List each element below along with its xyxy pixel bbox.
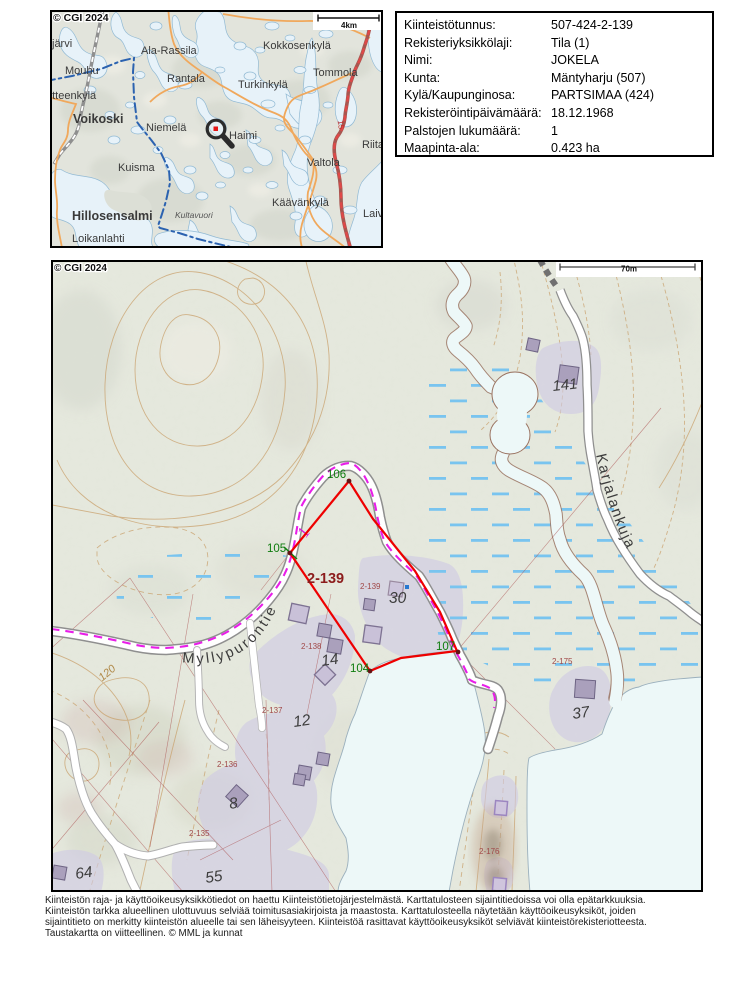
svg-text:2-139: 2-139 (360, 582, 381, 591)
svg-text:Kokkosenkylä: Kokkosenkylä (263, 40, 332, 52)
svg-text:Voikoski: Voikoski (73, 112, 123, 126)
svg-text:© CGI 2024: © CGI 2024 (53, 12, 109, 24)
svg-text:2-176: 2-176 (479, 847, 500, 856)
svg-text:järvi: järvi (51, 38, 72, 50)
svg-text:55: 55 (204, 868, 224, 887)
svg-text:Mouhu: Mouhu (65, 65, 99, 77)
svg-text:105: 105 (267, 543, 286, 555)
svg-text:utteenkylä: utteenkylä (50, 90, 97, 102)
svg-text:2-136: 2-136 (217, 760, 238, 769)
svg-text:2-175: 2-175 (552, 657, 573, 666)
svg-text:Kuisma: Kuisma (118, 162, 156, 174)
svg-text:Tommola: Tommola (313, 67, 359, 79)
svg-text:Hillosensalmi: Hillosensalmi (72, 209, 153, 223)
svg-text:70m: 70m (621, 265, 637, 274)
svg-text:104: 104 (350, 663, 370, 675)
svg-text:Loikanlahti: Loikanlahti (72, 233, 125, 245)
svg-text:Niemelä: Niemelä (146, 122, 187, 134)
svg-text:2-135: 2-135 (189, 829, 210, 838)
svg-text:2-139: 2-139 (307, 571, 344, 587)
svg-text:141: 141 (552, 375, 579, 395)
svg-text:Haimi: Haimi (229, 130, 257, 142)
svg-text:Rantala: Rantala (167, 73, 206, 85)
svg-text:4km: 4km (341, 21, 357, 30)
svg-text:12: 12 (292, 712, 312, 731)
svg-text:Riita: Riita (362, 139, 383, 151)
svg-text:Kultavuori: Kultavuori (175, 210, 214, 220)
svg-text:Turkinkylä: Turkinkylä (238, 79, 289, 91)
svg-text:Ala-Rassila: Ala-Rassila (141, 45, 198, 57)
svg-text:14: 14 (320, 651, 340, 670)
svg-text:2-138: 2-138 (301, 642, 322, 651)
svg-text:64: 64 (74, 864, 94, 883)
svg-text:© CGI 2024: © CGI 2024 (54, 263, 107, 274)
svg-text:Laiv: Laiv (363, 208, 383, 220)
svg-text:107: 107 (436, 641, 455, 653)
svg-text:Käävänkylä: Käävänkylä (272, 197, 330, 209)
svg-text:2-137: 2-137 (262, 706, 283, 715)
svg-text:30: 30 (389, 590, 407, 607)
svg-text:Valtola: Valtola (307, 157, 341, 169)
svg-text:106: 106 (327, 469, 346, 481)
svg-text:15: 15 (336, 120, 346, 130)
